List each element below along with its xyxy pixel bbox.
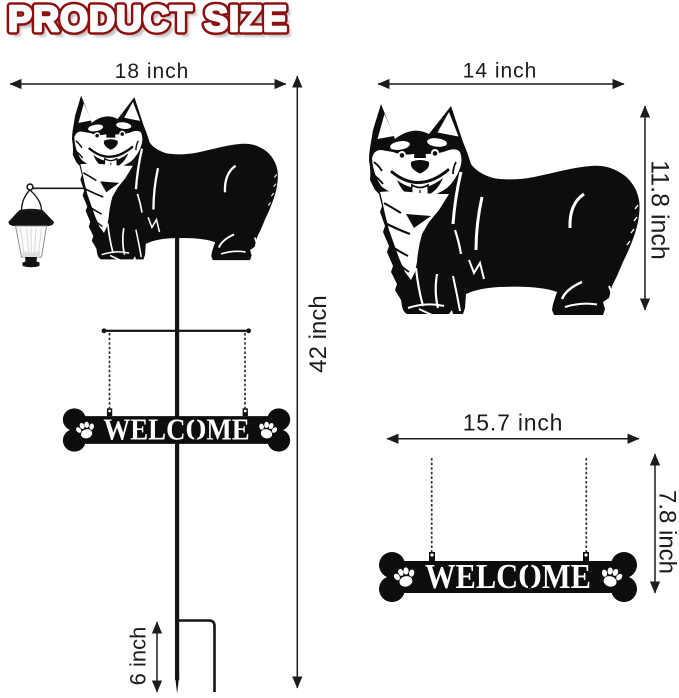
svg-text:14 inch: 14 inch	[463, 60, 538, 83]
svg-text:7.8 inch: 7.8 inch	[654, 490, 679, 574]
svg-text:42 inch: 42 inch	[305, 295, 332, 372]
svg-text:15.7 inch: 15.7 inch	[463, 410, 564, 436]
svg-text:11.8 inch: 11.8 inch	[646, 160, 674, 260]
svg-text:18 inch: 18 inch	[115, 60, 190, 83]
svg-text:6 inch: 6 inch	[126, 627, 151, 686]
svg-text:PRODUCT SIZE: PRODUCT SIZE	[8, 0, 288, 39]
